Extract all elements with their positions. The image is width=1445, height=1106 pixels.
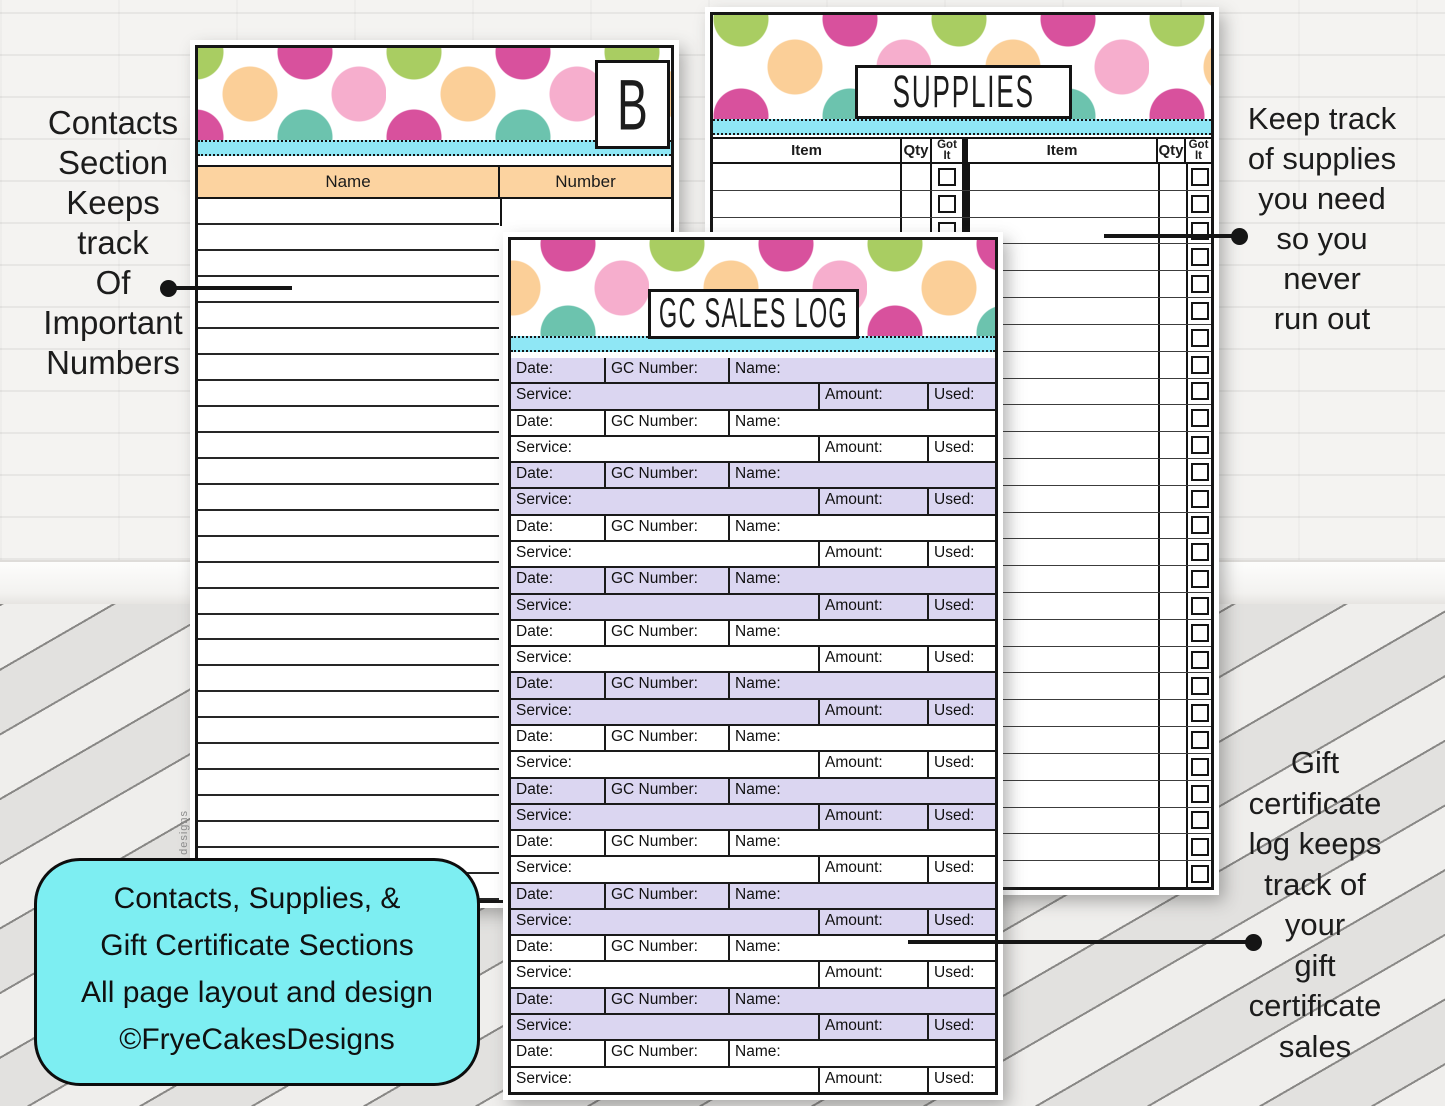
contacts-row: [198, 537, 499, 563]
gc-service-row: Service:Amount:Used:: [511, 805, 995, 831]
service-label: Service:: [511, 542, 820, 566]
name-label: Name:: [730, 831, 995, 855]
gc-service-row: Service:Amount:Used:: [511, 595, 995, 621]
item-cell: [713, 191, 902, 217]
got-it-cell: [1188, 861, 1211, 887]
name-label: Name:: [730, 516, 995, 540]
qty-cell: [902, 164, 932, 190]
gc-date-row: Date:GC Number:Name:: [511, 673, 995, 699]
service-label: Service:: [511, 910, 820, 934]
item-cell: [970, 754, 1160, 780]
supplies-pointer-line: [1104, 234, 1240, 238]
got-it-cell: [1188, 834, 1211, 860]
qty-cell: [1160, 352, 1188, 378]
used-label: Used:: [929, 910, 995, 934]
date-label: Date:: [511, 568, 606, 592]
item-cell: [970, 459, 1160, 485]
qty-cell: [1160, 379, 1188, 405]
contacts-pointer-dot: [160, 280, 177, 297]
column-header-got-it: Got It: [932, 139, 964, 162]
service-label: Service:: [511, 384, 820, 408]
got-it-checkbox: [1191, 436, 1209, 454]
used-label: Used:: [929, 700, 995, 724]
got-it-cell: [1188, 620, 1211, 646]
qty-cell: [1160, 432, 1188, 458]
name-label: Name:: [730, 779, 995, 803]
service-label: Service:: [511, 752, 820, 776]
amount-label: Amount:: [820, 700, 929, 724]
got-it-checkbox: [1191, 463, 1209, 481]
got-it-checkbox: [1191, 758, 1209, 776]
got-it-checkbox: [1191, 490, 1209, 508]
item-cell: [970, 379, 1160, 405]
note-line: track of: [1215, 865, 1415, 906]
qty-cell: [1160, 754, 1188, 780]
designer-watermark: designs: [178, 810, 190, 855]
note-line: Numbers: [8, 343, 218, 383]
caption-box: Contacts, Supplies, &Gift Certificate Se…: [34, 858, 480, 1086]
note-line: Important: [8, 303, 218, 343]
gift-certificate-annotation: Giftcertificatelog keepstrack ofyourgift…: [1215, 743, 1415, 1067]
note-line: certificate: [1215, 784, 1415, 825]
contacts-row: [198, 381, 499, 407]
note-line: sales: [1215, 1027, 1415, 1068]
gc-sales-rows: Date:GC Number:Name:Service:Amount:Used:…: [511, 358, 995, 1092]
gc-service-row: Service:Amount:Used:: [511, 1068, 995, 1092]
got-it-checkbox: [1191, 409, 1209, 427]
date-label: Date:: [511, 936, 606, 960]
gc-title: GC SALES LOG: [659, 293, 848, 335]
date-label: Date:: [511, 411, 606, 435]
date-label: Date:: [511, 673, 606, 697]
gc-pointer-dot: [1245, 934, 1262, 951]
got-it-cell: [1188, 513, 1211, 539]
supplies-row: [713, 191, 1211, 218]
gc-service-row: Service:Amount:Used:: [511, 700, 995, 726]
got-it-checkbox: [1191, 677, 1209, 695]
gc-service-row: Service:Amount:Used:: [511, 962, 995, 988]
contacts-row: [198, 822, 499, 848]
got-it-cell: [1188, 566, 1211, 592]
item-cell: [970, 620, 1160, 646]
got-it-checkbox: [1191, 731, 1209, 749]
qty-cell: [1160, 673, 1188, 699]
qty-cell: [1160, 727, 1188, 753]
contacts-annotation: ContactsSectionKeepstrackOfImportantNumb…: [8, 103, 218, 383]
gc-number-label: GC Number:: [606, 516, 730, 540]
contacts-row: [198, 225, 499, 251]
gc-number-label: GC Number:: [606, 936, 730, 960]
gc-pointer-line: [908, 940, 1253, 944]
item-cell: [970, 808, 1160, 834]
gc-service-row: Service:Amount:Used:: [511, 1015, 995, 1041]
gc-title-box: GC SALES LOG: [648, 289, 859, 339]
note-line: so you: [1222, 219, 1422, 259]
note-line: ©FryeCakesDesigns: [37, 1016, 477, 1063]
gc-number-label: GC Number:: [606, 779, 730, 803]
contacts-row: [198, 433, 499, 459]
date-label: Date:: [511, 989, 606, 1013]
item-cell: [713, 164, 902, 190]
supplies-table-header: Item Qty Got It Item Qty Got It: [713, 137, 1211, 164]
gc-number-label: GC Number:: [606, 726, 730, 750]
qty-cell: [1160, 486, 1188, 512]
note-line: run out: [1222, 299, 1422, 339]
got-it-checkbox: [1191, 838, 1209, 856]
item-cell: [970, 593, 1160, 619]
got-it-cell: [1188, 405, 1211, 431]
got-it-cell: [1188, 191, 1211, 217]
got-it-cell: [1188, 352, 1211, 378]
got-it-cell: [1188, 271, 1211, 297]
date-label: Date:: [511, 726, 606, 750]
got-it-cell: [1188, 593, 1211, 619]
qty-cell: [1160, 566, 1188, 592]
date-label: Date:: [511, 831, 606, 855]
item-cell: [970, 244, 1160, 270]
got-it-checkbox: [1191, 597, 1209, 615]
date-label: Date:: [511, 516, 606, 540]
amount-label: Amount:: [820, 1068, 929, 1092]
gc-service-row: Service:Amount:Used:: [511, 542, 995, 568]
qty-cell: [1160, 539, 1188, 565]
used-label: Used:: [929, 1068, 995, 1092]
got-it-cell: [1188, 325, 1211, 351]
got-it-checkbox: [1191, 785, 1209, 803]
used-label: Used:: [929, 962, 995, 986]
item-cell: [970, 218, 1160, 244]
got-it-cell: [1188, 432, 1211, 458]
contacts-table-header: Name Number: [198, 165, 671, 199]
note-line: Section: [8, 143, 218, 183]
column-header-name: Name: [198, 167, 500, 197]
gc-date-row: Date:GC Number:Name:: [511, 621, 995, 647]
qty-cell: [1160, 647, 1188, 673]
cyan-stripe: [713, 119, 1211, 135]
amount-label: Amount:: [820, 647, 929, 671]
note-line: Keep track: [1222, 99, 1422, 139]
contacts-row: [198, 407, 499, 433]
item-cell: [970, 298, 1160, 324]
note-line: certificate: [1215, 986, 1415, 1027]
gc-date-row: Date:GC Number:Name:: [511, 779, 995, 805]
contacts-row: [198, 744, 499, 770]
contacts-rows: [198, 199, 499, 900]
qty-cell: [1160, 593, 1188, 619]
note-line: All page layout and design: [37, 969, 477, 1016]
gc-number-label: GC Number:: [606, 568, 730, 592]
got-it-checkbox: [938, 168, 956, 186]
date-label: Date:: [511, 358, 606, 382]
qty-cell: [1160, 244, 1188, 270]
item-cell: [970, 405, 1160, 431]
gc-service-row: Service:Amount:Used:: [511, 857, 995, 883]
used-label: Used:: [929, 384, 995, 408]
product-showcase: Name Number B Item Qty Got It Item Qty G…: [0, 0, 1445, 1106]
date-label: Date:: [511, 463, 606, 487]
service-label: Service:: [511, 805, 820, 829]
item-cell: [970, 700, 1160, 726]
gc-number-label: GC Number:: [606, 989, 730, 1013]
got-it-cell: [932, 191, 964, 217]
gc-number-label: GC Number:: [606, 463, 730, 487]
got-it-line2: It: [943, 151, 950, 162]
got-it-checkbox: [1191, 356, 1209, 374]
column-header-qty: Qty: [902, 139, 932, 162]
contacts-row: [198, 640, 499, 666]
note-line: Gift: [1215, 743, 1415, 784]
item-cell: [970, 861, 1160, 887]
contacts-pointer-line: [168, 286, 292, 290]
got-it-checkbox: [1191, 811, 1209, 829]
name-label: Name:: [730, 463, 995, 487]
contacts-row: [198, 796, 499, 822]
got-it-checkbox: [938, 195, 956, 213]
got-it-cell: [1188, 700, 1211, 726]
item-cell: [970, 164, 1160, 190]
name-label: Name:: [730, 884, 995, 908]
item-cell: [970, 647, 1160, 673]
got-it-line1: Got: [1189, 140, 1209, 151]
service-label: Service:: [511, 595, 820, 619]
amount-label: Amount:: [820, 857, 929, 881]
supplies-annotation: Keep trackof suppliesyou needso younever…: [1222, 99, 1422, 339]
item-cell: [970, 271, 1160, 297]
service-label: Service:: [511, 489, 820, 513]
qty-cell: [1160, 325, 1188, 351]
amount-label: Amount:: [820, 752, 929, 776]
gc-number-label: GC Number:: [606, 621, 730, 645]
contacts-row: [198, 692, 499, 718]
got-it-cell: [1188, 459, 1211, 485]
service-label: Service:: [511, 647, 820, 671]
qty-cell: [1160, 459, 1188, 485]
item-cell: [970, 673, 1160, 699]
got-it-cell: [1188, 781, 1211, 807]
item-cell: [970, 191, 1160, 217]
date-label: Date:: [511, 1041, 606, 1065]
qty-cell: [1160, 861, 1188, 887]
item-cell: [970, 486, 1160, 512]
got-it-checkbox: [1191, 329, 1209, 347]
qty-cell: [1160, 781, 1188, 807]
got-it-checkbox: [1191, 570, 1209, 588]
contacts-row: [198, 666, 499, 692]
note-line: never: [1222, 259, 1422, 299]
column-header-number: Number: [500, 167, 671, 197]
gc-number-label: GC Number:: [606, 831, 730, 855]
amount-label: Amount:: [820, 542, 929, 566]
supplies-title-box: SUPPLIES: [855, 65, 1072, 119]
column-divider: [500, 199, 502, 226]
got-it-cell: [1188, 539, 1211, 565]
gc-number-label: GC Number:: [606, 1041, 730, 1065]
note-line: Of: [8, 263, 218, 303]
got-it-cell: [1188, 486, 1211, 512]
contacts-row: [198, 459, 499, 485]
service-label: Service:: [511, 1068, 820, 1092]
item-cell: [970, 781, 1160, 807]
item-cell: [970, 513, 1160, 539]
contacts-row: [198, 615, 499, 641]
contacts-row: [198, 277, 499, 303]
note-line: Keeps: [8, 183, 218, 223]
got-it-checkbox: [1191, 516, 1209, 534]
date-label: Date:: [511, 884, 606, 908]
used-label: Used:: [929, 805, 995, 829]
note-line: Gift Certificate Sections: [37, 922, 477, 969]
gc-number-label: GC Number:: [606, 358, 730, 382]
amount-label: Amount:: [820, 962, 929, 986]
used-label: Used:: [929, 489, 995, 513]
item-cell: [970, 352, 1160, 378]
used-label: Used:: [929, 437, 995, 461]
got-it-checkbox: [1191, 865, 1209, 883]
supplies-title: SUPPLIES: [892, 69, 1034, 114]
got-it-checkbox: [1191, 275, 1209, 293]
gc-date-row: Date:GC Number:Name:: [511, 884, 995, 910]
contacts-row: [198, 511, 499, 537]
got-it-cell: [1188, 244, 1211, 270]
got-it-cell: [1188, 727, 1211, 753]
name-label: Name:: [730, 989, 995, 1013]
name-label: Name:: [730, 358, 995, 382]
contacts-row: [198, 329, 499, 355]
service-label: Service:: [511, 857, 820, 881]
name-label: Name:: [730, 411, 995, 435]
used-label: Used:: [929, 595, 995, 619]
gc-date-row: Date:GC Number:Name:: [511, 411, 995, 437]
gc-date-row: Date:GC Number:Name:: [511, 568, 995, 594]
gc-date-row: Date:GC Number:Name:: [511, 1041, 995, 1067]
letter-tab-label: B: [617, 69, 648, 140]
gc-date-row: Date:GC Number:Name:: [511, 989, 995, 1015]
contacts-row: [198, 303, 499, 329]
gc-date-row: Date:GC Number:Name:: [511, 831, 995, 857]
amount-label: Amount:: [820, 384, 929, 408]
gc-sales-log-page: Date:GC Number:Name:Service:Amount:Used:…: [508, 237, 998, 1095]
service-label: Service:: [511, 437, 820, 461]
amount-label: Amount:: [820, 437, 929, 461]
amount-label: Amount:: [820, 1015, 929, 1039]
used-label: Used:: [929, 542, 995, 566]
contacts-row: [198, 718, 499, 744]
name-label: Name:: [730, 1041, 995, 1065]
service-label: Service:: [511, 1015, 820, 1039]
used-label: Used:: [929, 647, 995, 671]
item-cell: [970, 325, 1160, 351]
amount-label: Amount:: [820, 595, 929, 619]
supplies-row: [713, 164, 1211, 191]
supplies-pointer-dot: [1231, 228, 1248, 245]
got-it-cell: [1188, 379, 1211, 405]
gc-number-label: GC Number:: [606, 673, 730, 697]
qty-cell: [1160, 271, 1188, 297]
name-label: Name:: [730, 726, 995, 750]
got-it-cell: [1188, 164, 1211, 190]
item-cell: [970, 432, 1160, 458]
column-header-qty: Qty: [1158, 139, 1186, 162]
got-it-checkbox: [1191, 195, 1209, 213]
note-line: you need: [1222, 179, 1422, 219]
used-label: Used:: [929, 857, 995, 881]
date-label: Date:: [511, 779, 606, 803]
item-cell: [970, 566, 1160, 592]
gc-date-row: Date:GC Number:Name:: [511, 516, 995, 542]
got-it-line1: Got: [937, 140, 957, 151]
got-it-cell: [932, 164, 964, 190]
qty-cell: [1160, 218, 1188, 244]
gc-date-row: Date:GC Number:Name:: [511, 726, 995, 752]
qty-cell: [1160, 620, 1188, 646]
got-it-checkbox: [1191, 651, 1209, 669]
qty-cell: [1160, 405, 1188, 431]
gc-service-row: Service:Amount:Used:: [511, 384, 995, 410]
date-label: Date:: [511, 621, 606, 645]
gc-service-row: Service:Amount:Used:: [511, 437, 995, 463]
contacts-row: [198, 563, 499, 589]
column-header-got-it: Got It: [1186, 139, 1211, 162]
got-it-checkbox: [1191, 168, 1209, 186]
used-label: Used:: [929, 752, 995, 776]
amount-label: Amount:: [820, 910, 929, 934]
got-it-checkbox: [1191, 382, 1209, 400]
qty-cell: [1160, 808, 1188, 834]
got-it-cell: [1188, 808, 1211, 834]
note-line: Contacts, Supplies, &: [37, 875, 477, 922]
contacts-row: [198, 589, 499, 615]
gc-service-row: Service:Amount:Used:: [511, 489, 995, 515]
got-it-cell: [1188, 298, 1211, 324]
qty-cell: [1160, 513, 1188, 539]
got-it-cell: [1188, 673, 1211, 699]
got-it-checkbox: [1191, 248, 1209, 266]
note-line: track: [8, 223, 218, 263]
gc-date-row: Date:GC Number:Name:: [511, 463, 995, 489]
note-line: of supplies: [1222, 139, 1422, 179]
qty-cell: [902, 191, 932, 217]
got-it-checkbox: [1191, 543, 1209, 561]
item-cell: [970, 727, 1160, 753]
got-it-checkbox: [1191, 624, 1209, 642]
service-label: Service:: [511, 962, 820, 986]
qty-cell: [1160, 191, 1188, 217]
amount-label: Amount:: [820, 805, 929, 829]
contacts-row: [198, 485, 499, 511]
qty-cell: [1160, 700, 1188, 726]
amount-label: Amount:: [820, 489, 929, 513]
item-cell: [970, 539, 1160, 565]
got-it-cell: [1188, 218, 1211, 244]
contacts-row: [198, 251, 499, 277]
column-header-item: Item: [713, 139, 902, 162]
name-label: Name:: [730, 673, 995, 697]
gc-number-label: GC Number:: [606, 411, 730, 435]
gc-service-row: Service:Amount:Used:: [511, 910, 995, 936]
service-label: Service:: [511, 700, 820, 724]
got-it-line2: It: [1195, 151, 1202, 162]
note-line: gift: [1215, 946, 1415, 987]
column-header-item: Item: [968, 139, 1158, 162]
letter-tab: B: [595, 60, 670, 149]
name-label: Name:: [730, 568, 995, 592]
got-it-cell: [1188, 647, 1211, 673]
qty-cell: [1160, 164, 1188, 190]
got-it-cell: [1188, 754, 1211, 780]
contacts-row: [198, 770, 499, 796]
got-it-checkbox: [1191, 302, 1209, 320]
gc-number-label: GC Number:: [606, 884, 730, 908]
